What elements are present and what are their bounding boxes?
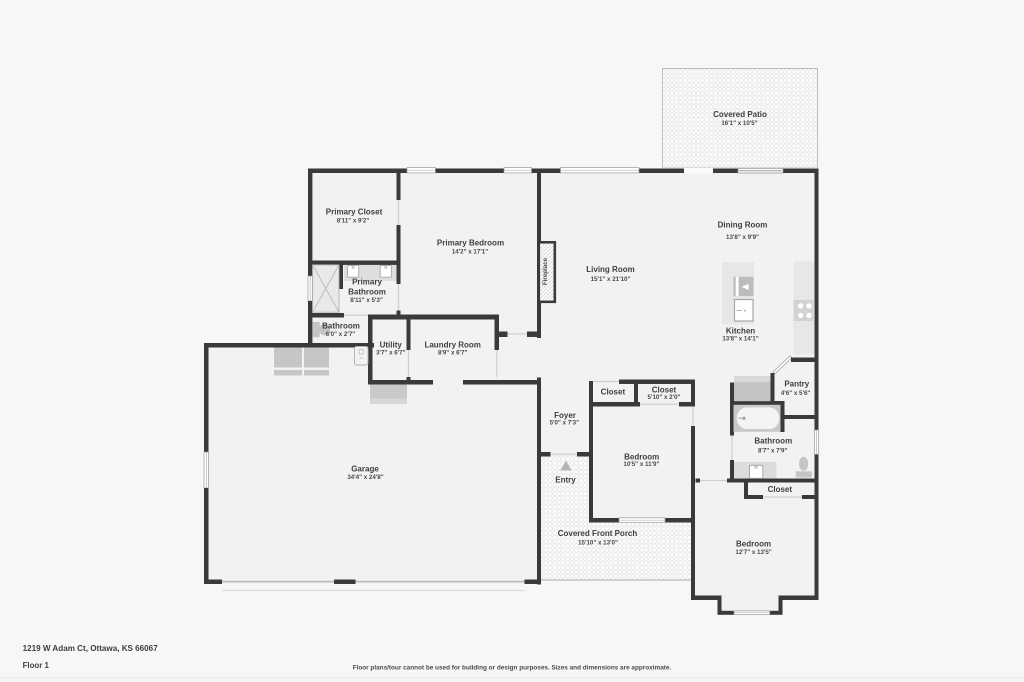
svg-text:Covered Front Porch: Covered Front Porch — [558, 529, 638, 538]
svg-text:Fireplace: Fireplace — [542, 257, 549, 285]
svg-text:Primary Closet: Primary Closet — [326, 208, 383, 217]
svg-text:Living Room: Living Room — [586, 265, 634, 274]
svg-text:Entry: Entry — [555, 475, 576, 484]
svg-text:Bathroom: Bathroom — [322, 322, 360, 331]
svg-text:Floor plans/tour cannot be use: Floor plans/tour cannot be used for buil… — [353, 665, 672, 672]
svg-text:Closet: Closet — [601, 388, 626, 397]
svg-text:Bedroom: Bedroom — [736, 540, 771, 549]
svg-text:4'6" x 5'6": 4'6" x 5'6" — [781, 390, 811, 397]
svg-text:Bathroom: Bathroom — [348, 288, 386, 297]
svg-text:8'11" x 9'2": 8'11" x 9'2" — [337, 218, 370, 225]
svg-text:Utility: Utility — [380, 340, 403, 349]
svg-text:Dining Room: Dining Room — [718, 221, 768, 230]
svg-text:15'1" x 21'10": 15'1" x 21'10" — [591, 276, 631, 283]
svg-text:34'4" x 24'8": 34'4" x 24'8" — [347, 474, 383, 481]
svg-text:Bedroom: Bedroom — [624, 452, 659, 461]
svg-text:Closet: Closet — [652, 385, 677, 394]
svg-text:Primary Bedroom: Primary Bedroom — [437, 239, 504, 248]
svg-text:Covered Patio: Covered Patio — [713, 110, 767, 119]
svg-text:13'8" x 14'1": 13'8" x 14'1" — [722, 336, 758, 343]
svg-text:8'11" x 5'3": 8'11" x 5'3" — [350, 297, 383, 304]
svg-text:Closet: Closet — [768, 485, 793, 494]
svg-text:Bathroom: Bathroom — [754, 437, 792, 446]
svg-text:15'10" x 13'0": 15'10" x 13'0" — [578, 540, 618, 547]
svg-text:Pantry: Pantry — [784, 380, 809, 389]
svg-text:12'7" x 13'5": 12'7" x 13'5" — [735, 549, 771, 556]
svg-text:16'1" x 10'5": 16'1" x 10'5" — [721, 120, 757, 127]
svg-text:1219 W Adam Ct, Ottawa, KS 660: 1219 W Adam Ct, Ottawa, KS 66067 — [23, 644, 159, 653]
svg-text:Floor 1: Floor 1 — [23, 661, 50, 670]
svg-text:Kitchen: Kitchen — [726, 326, 755, 335]
svg-text:14'2" x 17'1": 14'2" x 17'1" — [452, 248, 488, 255]
svg-text:Garage: Garage — [351, 464, 379, 473]
svg-text:8'9" x 6'7": 8'9" x 6'7" — [438, 350, 468, 357]
svg-text:8'7" x 7'9": 8'7" x 7'9" — [758, 448, 788, 455]
svg-text:5'0" x 7'3": 5'0" x 7'3" — [550, 420, 580, 427]
svg-text:Primary: Primary — [352, 277, 382, 286]
svg-text:Laundry Room: Laundry Room — [424, 340, 480, 349]
svg-text:6'0" x 2'7": 6'0" x 2'7" — [326, 331, 356, 338]
svg-text:10'5" x 11'9": 10'5" x 11'9" — [623, 461, 659, 468]
svg-text:13'8" x 9'9": 13'8" x 9'9" — [726, 234, 759, 241]
svg-text:3'7" x 6'7": 3'7" x 6'7" — [376, 350, 406, 357]
svg-text:5'10" x 2'0": 5'10" x 2'0" — [648, 394, 681, 401]
